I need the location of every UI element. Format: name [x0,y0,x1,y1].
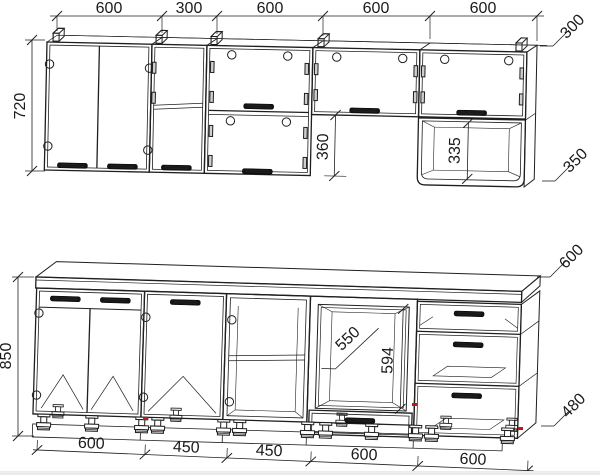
red-marker [412,403,417,406]
door-swing-mark [148,375,217,413]
wall-units-row: 360 335 [43,28,547,187]
drawer-handle [454,311,484,317]
dim-base-width-2: 450 [173,439,200,457]
wall-hanger-bracket [156,30,167,43]
dim-wall-width-2: 300 [176,0,203,17]
dim-wall-width-5: 600 [470,0,497,17]
drawer-handle [345,418,375,424]
dim-base-height: 850 [0,343,15,370]
bottom-edge-shadow [0,471,600,475]
wall-width-dimension-chain: 600 300 600 600 600 [50,0,544,41]
flip-door-handle [242,169,272,175]
red-marker [518,427,523,430]
door-handle [100,297,130,303]
dim-wall-depth: 300 [557,11,588,42]
dim-base-width-5: 600 [459,451,486,469]
oven-niche-depth-leader-550: 550 [321,323,378,370]
wall-depth-leader-300: 300 [540,11,588,46]
drawer-handle [452,393,482,399]
flip-door-handle [244,104,274,110]
dim-oven-niche-depth: 550 [333,324,364,355]
wall-hanger-bracket [211,31,222,44]
red-marker [143,417,148,420]
wall-cabinet-3-flip-up-doors [204,31,323,175]
base-cabinet-3-open-shelf [223,294,311,422]
hood-gap-dimension: 360 [314,110,348,182]
wall-cabinet-5-flip-up-with-niche [417,36,537,187]
carcass-depth-leader-480: 480 [541,390,589,426]
door-handle [57,163,87,169]
base-units-row: 594 550 [31,261,540,452]
door-handle [107,164,137,170]
dim-hood-gap: 360 [315,133,333,160]
wall-cabinet-1-two-doors [43,28,162,172]
dim-worktop-depth: 600 [556,241,587,272]
dim-wall-width-1: 600 [96,0,123,17]
dim-wall-niche-depth: 350 [560,145,591,176]
drawer-handle [453,342,483,348]
worktop [36,261,541,303]
drawing-canvas: 600 300 600 600 600 720 [0,0,600,475]
dim-wall-width-4: 600 [363,0,390,17]
base-height-dimension: 850 [0,272,34,441]
dim-oven-niche-height: 594 [379,347,397,374]
dim-wall-width-3: 600 [257,0,284,17]
base-cabinet-4-oven-housing: 594 550 [306,296,417,437]
flip-door-handle [350,108,380,114]
door-swing-mark [41,374,84,409]
wall-hanger-bracket [318,34,329,47]
wall-hanger-bracket [53,28,64,41]
wall-hanger-bracket [516,38,527,51]
flip-door-handle [457,110,487,116]
base-cabinet-2-single-door [139,291,227,419]
door-swing-mark [91,376,134,411]
base-cabinet-1-double-door [32,288,145,417]
door-handle [50,296,80,302]
wall-cabinet-4-short-flip-up [312,34,431,117]
kitchen-cabinet-dimension-drawing: 600 300 600 600 600 720 [0,0,600,475]
base-cabinet-5-drawer-unit [413,287,539,439]
wall-niche-depth-leader-350: 350 [542,145,591,181]
side-panel [517,290,539,438]
wall-height-dimension: 720 [12,35,45,176]
door-handle [170,299,200,305]
dim-base-width-4: 600 [350,446,377,464]
dim-niche-height: 335 [447,137,465,164]
dim-wall-height: 720 [12,93,29,120]
door-handle [161,165,191,171]
dim-base-width-1: 600 [78,435,105,453]
worktop-depth-leader-600: 600 [537,241,587,277]
dim-base-width-3: 450 [255,442,282,460]
